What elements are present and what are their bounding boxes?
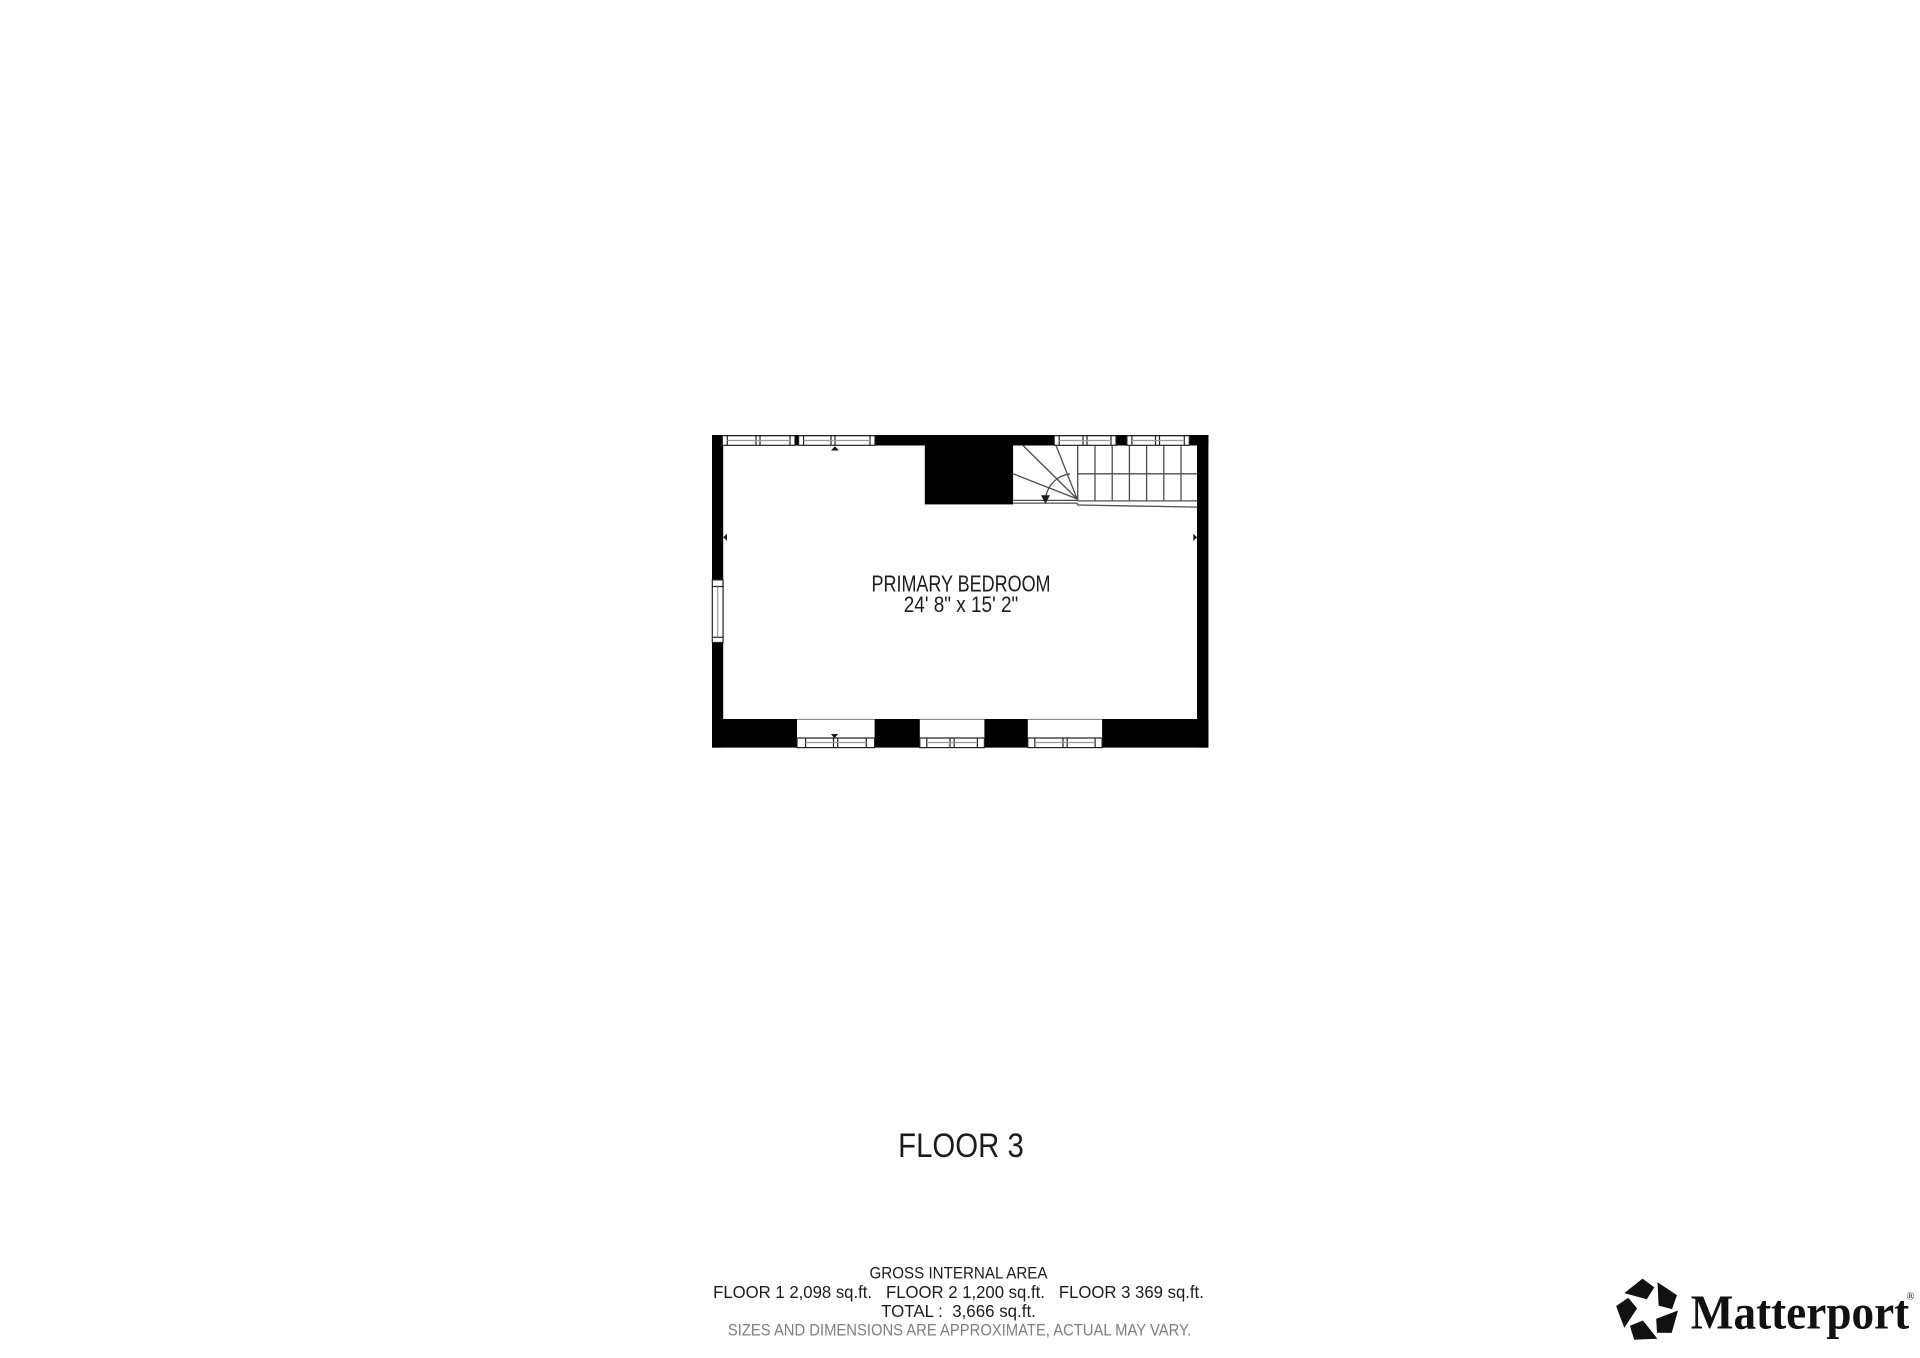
svg-text:SIZES AND DIMENSIONS ARE APPRO: SIZES AND DIMENSIONS ARE APPROXIMATE, AC…: [728, 1322, 1191, 1340]
svg-text:®: ®: [1907, 1292, 1915, 1303]
svg-text:FLOOR 1 2,098 sq.ft. FLOOR 2: FLOOR 1 2,098 sq.ft. FLOOR 2 1,200 sq.ft…: [713, 1282, 1204, 1302]
svg-text:Matterport: Matterport: [1691, 1284, 1910, 1339]
svg-text:GROSS INTERNAL AREA: GROSS INTERNAL AREA: [870, 1263, 1049, 1282]
svg-text:TOTAL : 3,666 sq.ft.: TOTAL : 3,666 sq.ft.: [881, 1301, 1036, 1321]
svg-text:24' 8" x 15' 2": 24' 8" x 15' 2": [904, 592, 1019, 617]
svg-text:FLOOR 3: FLOOR 3: [898, 1127, 1024, 1165]
